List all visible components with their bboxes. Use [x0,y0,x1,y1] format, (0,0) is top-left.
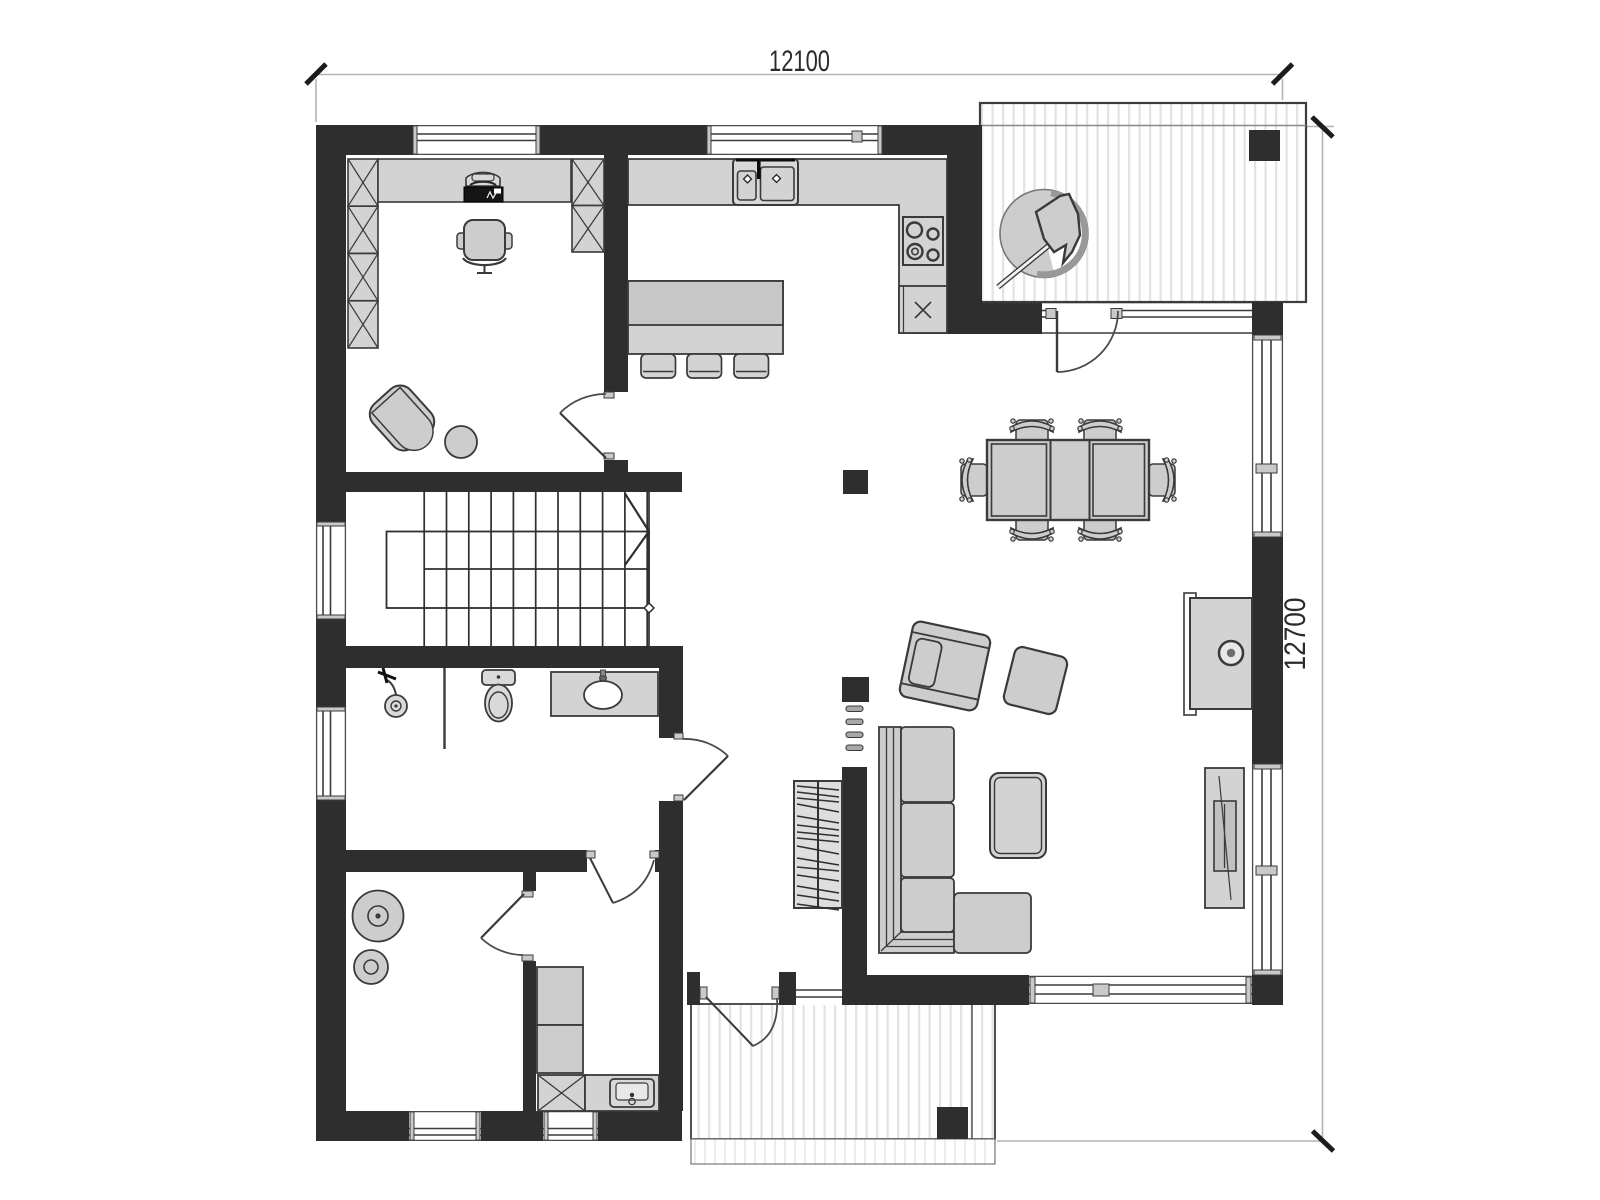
svg-text:12700: 12700 [1279,598,1312,671]
svg-text:12100: 12100 [769,45,830,78]
